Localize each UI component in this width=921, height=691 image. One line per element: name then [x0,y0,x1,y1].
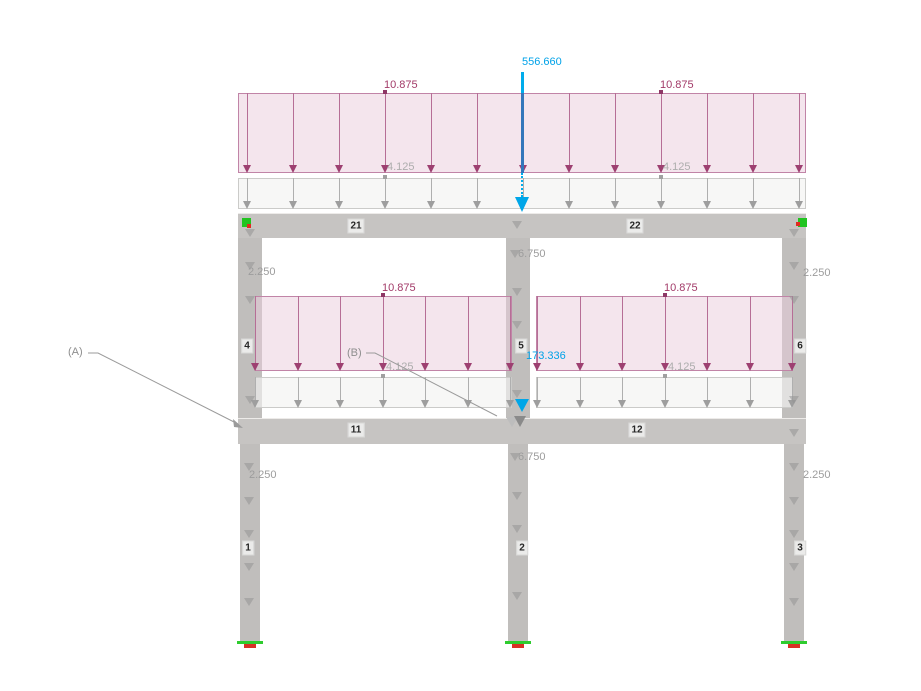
member-number-label[interactable]: 1 [242,541,254,556]
distributed-load-primary-arrow-head [749,165,757,173]
distributed-load-secondary-arrow-head [506,400,514,408]
distributed-load-secondary-arrow-head [657,201,665,209]
distributed-load-primary-arrow-stem [298,296,299,363]
distributed-load-secondary-arrow-stem [569,178,570,201]
annotation-label: (A) [68,346,83,358]
distributed-load-secondary-value-label: 4.125 [386,361,414,373]
annotation-label: (B) [347,347,362,359]
distributed-load-secondary-arrow-stem [753,178,754,201]
column-load-arrow [789,463,799,471]
distributed-load-secondary-arrow-head [294,400,302,408]
column-load-arrow [789,296,799,304]
distributed-load-primary-arrow-stem [425,296,426,363]
column-load-value-label: 6.750 [518,451,546,463]
distributed-load-secondary-arrow-head [464,400,472,408]
distributed-load-primary-arrow-stem [707,93,708,165]
distributed-load-secondary-arrow-head [381,201,389,209]
distributed-load-secondary-arrow-head [289,201,297,209]
column-load-arrow [789,262,799,270]
member-number-label[interactable]: 3 [794,541,806,556]
distributed-load-secondary-arrow-head [565,201,573,209]
member-number-label[interactable]: 2 [516,541,528,556]
column-load-value-label: 6.750 [518,248,546,260]
distributed-load-secondary-arrow-head [746,400,754,408]
distributed-load-primary-arrow-head [427,165,435,173]
distributed-load-primary-value-label: 10.875 [660,79,694,91]
distributed-load-secondary-arrow-stem [247,178,248,201]
distributed-load-secondary-arrow-stem [707,178,708,201]
distributed-load-secondary-arrow-stem [622,377,623,400]
column-load-arrow [512,288,522,296]
distributed-load-secondary-arrow-head [379,400,387,408]
distributed-load-primary-arrow-stem [510,296,511,363]
distributed-load-secondary-arrow-head [336,400,344,408]
distributed-load-secondary-value-label: 4.125 [387,161,415,173]
column-load-arrow [245,296,255,304]
member-number-label[interactable]: 5 [515,339,527,354]
column-load-arrow [789,598,799,606]
member-beam-21-22[interactable] [238,213,806,238]
distributed-load-secondary-arrow-stem [750,377,751,400]
distributed-load-secondary-arrow-head [421,400,429,408]
distributed-load-primary-arrow-stem [750,296,751,363]
distributed-load-secondary-arrow-head [703,400,711,408]
column-load-arrow [512,221,522,229]
distributed-load-secondary-arrow-stem [615,178,616,201]
distributed-load-primary-arrow-stem [247,93,248,165]
distributed-load-primary-arrow-stem [792,296,793,363]
column-load-arrow [245,229,255,237]
distributed-load-secondary-arrow-stem [385,178,386,201]
column-load-arrow [244,530,254,538]
distributed-load-secondary-label-dot [659,175,663,179]
member-number-label[interactable]: 4 [241,339,253,354]
distributed-load-primary-arrow-stem [753,93,754,165]
distributed-load-primary-value-label: 10.875 [384,79,418,91]
column-load-arrow [789,563,799,571]
distributed-load-primary-arrow-stem [255,296,256,363]
distributed-load-primary-arrow-head [703,363,711,371]
distributed-load-primary-arrow-stem [477,93,478,165]
distributed-load-primary-arrow-head [565,165,573,173]
distributed-load-secondary-arrow-head [335,201,343,209]
structural-model-canvas: 10.87510.87510.87510.8754.1254.1254.1254… [0,0,921,691]
distributed-load-primary-arrow-stem [661,93,662,165]
distributed-load-secondary-arrow-head [661,400,669,408]
column-load-arrow [512,321,522,329]
column-load-arrow [789,530,799,538]
distributed-load-secondary-label-dot [381,374,385,378]
distributed-load-secondary-arrow-head [749,201,757,209]
column-load-arrow [244,497,254,505]
column-load-arrow [789,497,799,505]
point-load-arrow-stem[interactable] [521,72,524,93]
distributed-load-primary-arrow-head [473,165,481,173]
support-marker-red-bar[interactable] [788,644,800,648]
distributed-load-secondary-arrow-head [611,201,619,209]
distributed-load-secondary-arrow-stem [293,178,294,201]
point-load-arrow-stem[interactable] [521,93,524,173]
distributed-load-secondary-arrow-stem [298,377,299,400]
distributed-load-secondary-arrow-head [427,201,435,209]
member-number-label[interactable]: 11 [348,423,365,438]
distributed-load-secondary-label-dot [383,175,387,179]
node-marker-red-dot [796,222,800,226]
distributed-load-secondary-arrow-stem [665,377,666,400]
distributed-load-secondary-arrow-stem [799,178,800,201]
point-load-value-label: 556.660 [522,56,562,68]
support-marker-red-bar[interactable] [244,644,256,648]
column-load-arrow [789,229,799,237]
distributed-load-secondary-arrow-stem [431,178,432,201]
support-marker-red-bar[interactable] [512,644,524,648]
distributed-load-secondary-arrow-stem [510,377,511,400]
column-load-arrow [245,396,255,404]
column-load-arrow [512,592,522,600]
distributed-load-secondary-arrow-head [618,400,626,408]
distributed-load-primary-arrow-head [335,165,343,173]
distributed-load-primary-arrow-stem [615,93,616,165]
distributed-load-secondary-arrow-head [533,400,541,408]
distributed-load-primary-arrow-head [746,363,754,371]
distributed-load-primary-arrow-stem [468,296,469,363]
distributed-load-primary-arrow-stem [293,93,294,165]
distributed-load-primary-arrow-stem [622,296,623,363]
point-load-arrow-stem-dotted [521,173,523,197]
member-number-label[interactable]: 6 [794,339,806,354]
distributed-load-secondary-arrow-stem [537,377,538,400]
distributed-load-primary-arrow-head [703,165,711,173]
distributed-load-primary-arrow-head [506,363,514,371]
distributed-load-secondary-arrow-stem [580,377,581,400]
distributed-load-secondary-arrow-stem [468,377,469,400]
distributed-load-secondary-arrow-stem [383,377,384,400]
column-load-arrow [789,396,799,404]
column-load-arrow [244,598,254,606]
distributed-load-primary-arrow-head [294,363,302,371]
distributed-load-secondary-arrow-head [795,201,803,209]
distributed-load-primary-arrow-head [421,363,429,371]
distributed-load-primary-arrow-stem [340,296,341,363]
distributed-load-primary-arrow-head [788,363,796,371]
distributed-load-secondary-arrow-head [576,400,584,408]
column-load-value-label: 2.250 [249,469,277,481]
distributed-load-primary-arrow-stem [707,296,708,363]
distributed-load-secondary-value-label: 4.125 [668,361,696,373]
point-load-arrow-head [515,197,529,212]
point-load-value-label: 173.336 [526,350,566,362]
distributed-load-primary-value-label: 10.875 [664,282,698,294]
distributed-load-primary-arrow-head [618,363,626,371]
column-load-arrow [512,492,522,500]
distributed-load-primary-arrow-head [795,165,803,173]
column-load-arrow [789,429,799,437]
node-marker-red-dot [247,224,251,228]
distributed-load-secondary-arrow-head [243,201,251,209]
distributed-load-primary-arrow-head [251,363,259,371]
distributed-load-primary-arrow-stem [569,93,570,165]
member-number-label[interactable]: 22 [626,219,643,234]
distributed-load-secondary-arrow-stem [707,377,708,400]
member-number-label[interactable]: 21 [347,219,364,234]
column-load-arrow [512,525,522,533]
distributed-load-primary-arrow-stem [383,296,384,363]
distributed-load-primary-arrow-head [243,165,251,173]
distributed-load-primary-arrow-stem [339,93,340,165]
column-load-value-label: 2.250 [803,469,831,481]
distributed-load-primary-arrow-stem [665,296,666,363]
distributed-load-primary-arrow-stem [431,93,432,165]
distributed-load-secondary-value-label: 4.125 [663,161,691,173]
distributed-load-primary-arrow-head [464,363,472,371]
distributed-load-primary-arrow-head [576,363,584,371]
distributed-load-secondary-arrow-stem [255,377,256,400]
junction-marker-dark [514,416,526,427]
column-load-value-label: 2.250 [803,267,831,279]
distributed-load-secondary-arrow-stem [339,178,340,201]
distributed-load-secondary-label-dot [663,374,667,378]
distributed-load-secondary-arrow-head [703,201,711,209]
distributed-load-primary-arrow-head [611,165,619,173]
distributed-load-primary-arrow-head [533,363,541,371]
distributed-load-primary-arrow-head [289,165,297,173]
column-load-arrow [244,563,254,571]
distributed-load-primary-arrow-stem [799,93,800,165]
point-load-arrow-head [515,399,529,412]
distributed-load-secondary-arrow-head [473,201,481,209]
column-load-value-label: 2.250 [248,266,276,278]
column-load-arrow [512,390,522,398]
distributed-load-secondary-arrow-stem [340,377,341,400]
distributed-load-secondary-arrow-stem [661,178,662,201]
member-number-label[interactable]: 12 [628,423,645,438]
distributed-load-primary-value-label: 10.875 [382,282,416,294]
distributed-load-primary-arrow-stem [385,93,386,165]
distributed-load-primary-arrow-head [336,363,344,371]
distributed-load-secondary-arrow-stem [425,377,426,400]
distributed-load-secondary-arrow-stem [477,178,478,201]
distributed-load-primary-arrow-stem [580,296,581,363]
